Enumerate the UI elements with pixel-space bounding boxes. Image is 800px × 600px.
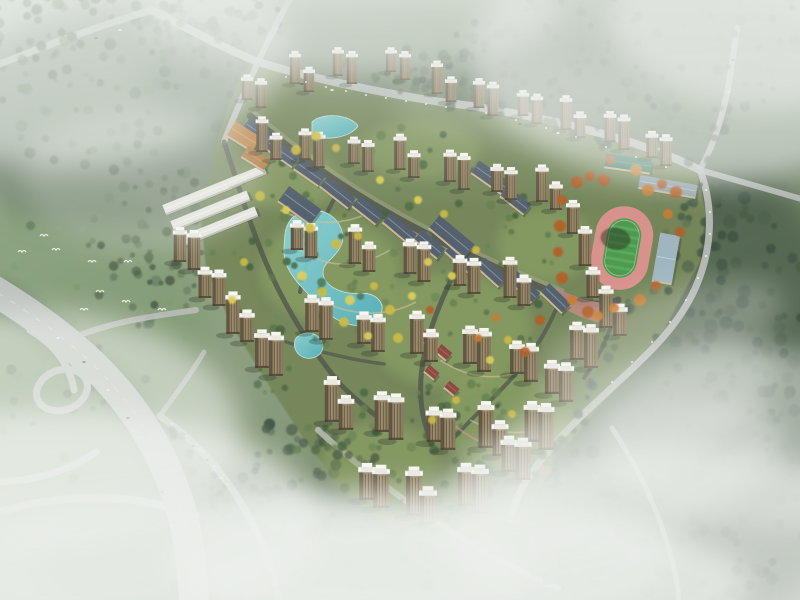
aerial-rendering-stage (0, 0, 800, 600)
masterplan-aerial-image (0, 0, 800, 600)
atmospheric-haze (0, 0, 800, 600)
